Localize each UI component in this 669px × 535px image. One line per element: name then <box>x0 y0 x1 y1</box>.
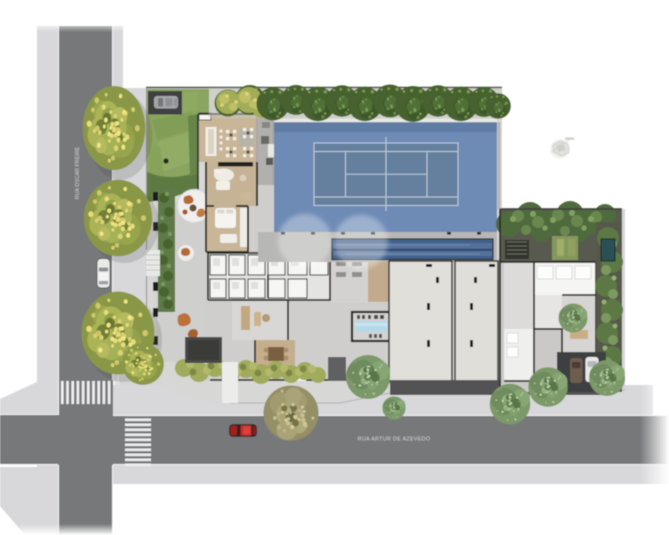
svg-text:RUA ARTUR DE AZEVEDO: RUA ARTUR DE AZEVEDO <box>358 437 431 443</box>
svg-text:RUA OSCAR FREIRE: RUA OSCAR FREIRE <box>75 146 81 199</box>
